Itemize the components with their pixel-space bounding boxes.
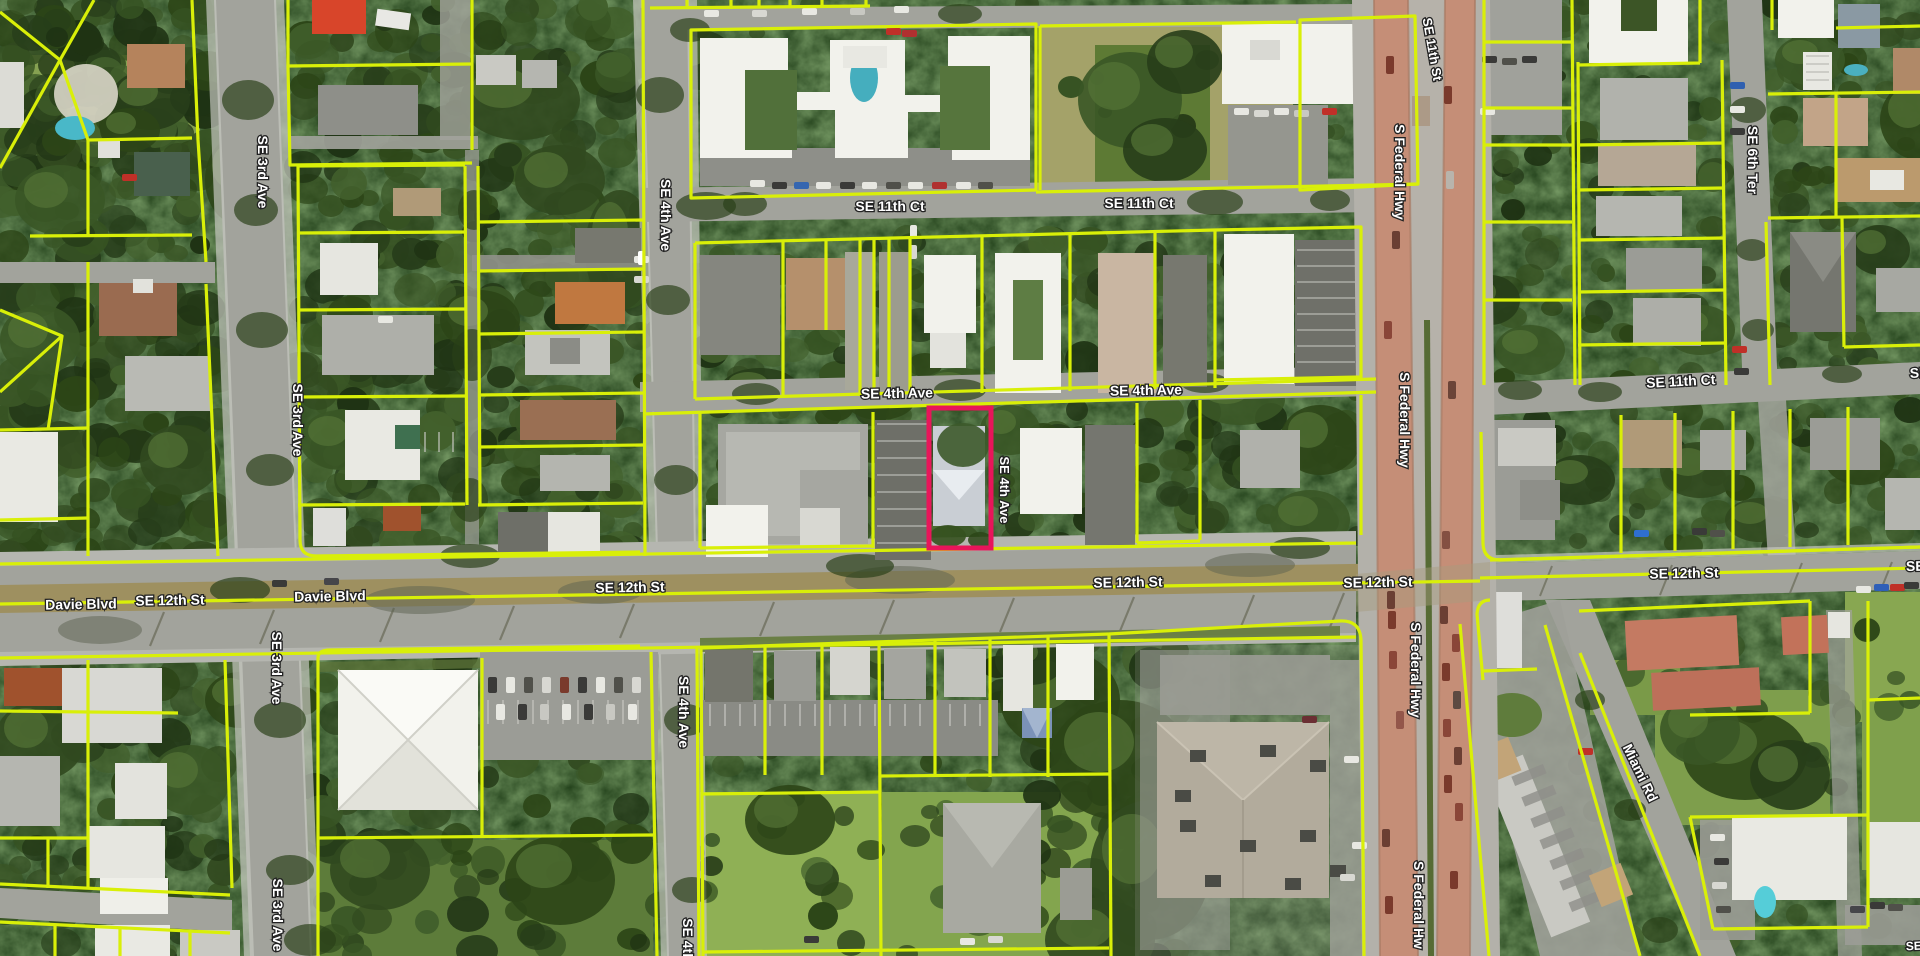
svg-text:SE: SE [1905,939,1920,954]
svg-text:S Federal Hw: S Federal Hw [1411,861,1427,949]
svg-text:SE 6th Ter: SE 6th Ter [1745,126,1761,195]
svg-text:SE 4th Ave: SE 4th Ave [1110,381,1183,398]
svg-text:SE 3rd Ave: SE 3rd Ave [290,384,306,457]
svg-text:S Federal Hwy: S Federal Hwy [1397,372,1413,468]
svg-text:SE 12th St: SE 12th St [135,591,205,608]
svg-text:SE 12th St: SE 12th St [1093,573,1163,590]
svg-text:SE 4th: SE 4th [680,918,696,956]
svg-text:SE 11th Ct: SE 11th Ct [1104,195,1174,211]
svg-text:SE 4th Ave: SE 4th Ave [861,384,934,401]
svg-text:SE 11th Ct: SE 11th Ct [855,198,925,214]
svg-text:SE: SE [1909,364,1920,381]
svg-text:SE 12th St: SE 12th St [1649,564,1719,581]
svg-text:SE 12th St: SE 12th St [1343,573,1413,590]
svg-text:SE 4th Ave: SE 4th Ave [658,179,674,251]
svg-text:S Federal Hwy: S Federal Hwy [1392,124,1408,220]
svg-text:SE 4th Ave: SE 4th Ave [676,676,692,748]
svg-text:Davie Blvd: Davie Blvd [45,595,117,612]
svg-text:SE 3rd Ave: SE 3rd Ave [255,136,271,209]
svg-text:SE 4th Ave: SE 4th Ave [997,457,1012,524]
svg-text:SE 12th St: SE 12th St [595,578,665,595]
svg-text:S Federal Hwy: S Federal Hwy [1408,622,1424,718]
svg-text:SE 3rd Ave: SE 3rd Ave [269,632,285,705]
svg-text:SE: SE [1906,558,1920,574]
svg-text:SE 3rd Ave: SE 3rd Ave [270,879,286,952]
svg-text:Davie Blvd: Davie Blvd [294,587,366,604]
